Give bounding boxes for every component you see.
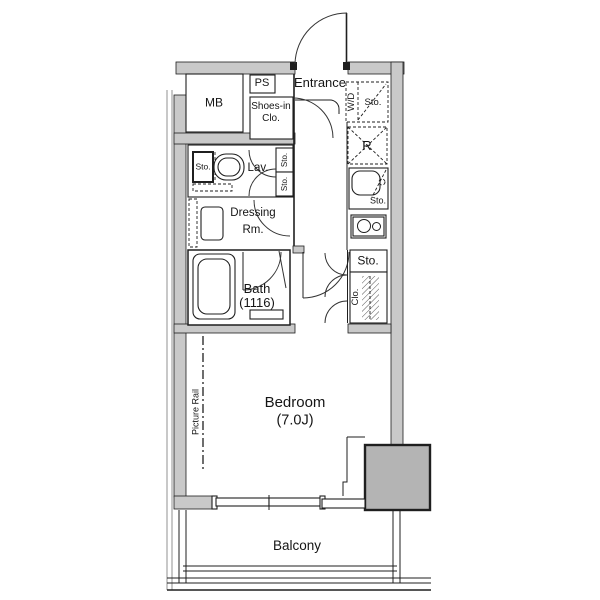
bath-size-label: (1116)	[239, 296, 275, 310]
hall-storage-bottom-label: Sto.	[280, 177, 288, 191]
lavatory-label: Lav.	[248, 162, 269, 174]
bedroom-label: Bedroom	[265, 395, 326, 411]
dressing-room-label-2: Rm.	[242, 224, 263, 236]
sink	[352, 171, 380, 195]
lav-storage-label: Sto.	[195, 163, 210, 172]
pipe-space-label: PS	[255, 78, 270, 90]
low-wall	[322, 499, 365, 508]
kitchen-storage-label: Sto.	[370, 196, 386, 205]
hall-storage-top-label: Sto.	[280, 153, 288, 167]
dressing-room-label-1: Dressing	[230, 207, 275, 219]
balcony-label: Balcony	[273, 539, 321, 553]
hanger-hatch	[362, 276, 379, 320]
shoes-closet-label-1: Shoes-in	[251, 102, 290, 113]
bedroom-size-label: (7.0J)	[276, 413, 313, 428]
picture-rail-label: Picture Rail	[191, 389, 200, 435]
wd-storage-label: Sto.	[365, 98, 382, 108]
meter-box-label: MB	[205, 97, 223, 110]
bath-counter	[250, 310, 283, 319]
closet-label: Clo.	[351, 289, 361, 306]
window-right	[269, 498, 321, 506]
floor-plan: MB PS Shoes-in Clo. Entrance W/D Sto. R …	[0, 0, 600, 600]
shoes-closet-label-2: Clo.	[262, 114, 280, 125]
window-left	[216, 498, 269, 506]
bath-room	[188, 250, 290, 325]
outer-boundary-lines	[167, 90, 172, 590]
bath-label: Bath	[244, 282, 271, 296]
washing-machine	[201, 207, 223, 240]
entrance-label: Entrance	[294, 76, 346, 90]
washer-dryer-label: W/D	[347, 93, 357, 111]
refrigerator-label: R	[362, 139, 371, 153]
closet-doors	[325, 253, 347, 323]
bedroom-windows	[212, 495, 365, 510]
closet-storage-label: Sto.	[357, 255, 378, 268]
